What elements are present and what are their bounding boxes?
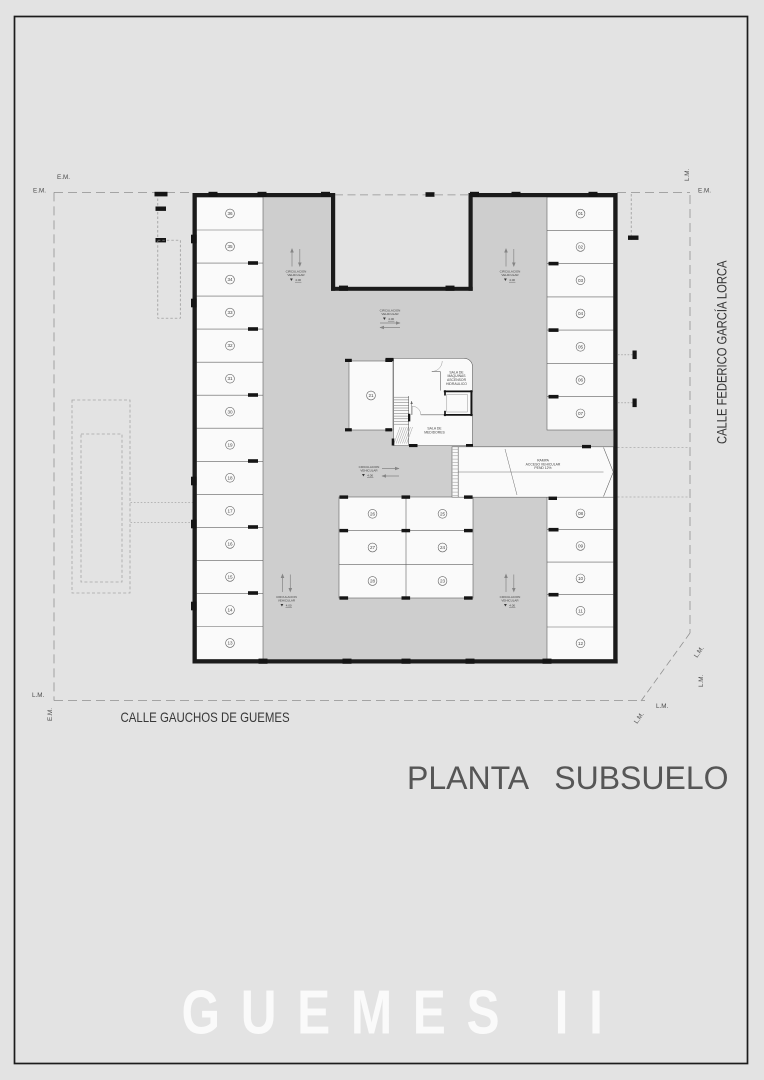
svg-text:15: 15 [227, 575, 233, 580]
svg-text:VEHICULAR: VEHICULAR [501, 599, 519, 603]
svg-text:35: 35 [227, 244, 233, 249]
svg-text:4.00: 4.00 [509, 604, 515, 608]
svg-text:33: 33 [227, 310, 233, 315]
svg-text:VEHICULAR: VEHICULAR [278, 599, 296, 603]
svg-text:L.M.: L.M. [698, 675, 705, 687]
svg-text:VEHICULAR: VEHICULAR [360, 469, 378, 473]
svg-text:L.M.: L.M. [656, 703, 668, 710]
svg-text:27: 27 [370, 545, 376, 550]
svg-text:07: 07 [578, 411, 584, 416]
svg-text:HIDRAULICO: HIDRAULICO [446, 382, 467, 386]
svg-text:CALLE GAUCHOS DE GUEMES: CALLE GAUCHOS DE GUEMES [121, 710, 290, 725]
svg-text:36: 36 [227, 211, 233, 216]
svg-text:GUEMES II: GUEMES II [182, 977, 624, 1047]
svg-text:L.M.: L.M. [32, 692, 44, 699]
svg-text:10: 10 [578, 576, 584, 581]
svg-text:E.M.: E.M. [47, 708, 54, 721]
svg-text:MEDIDORES: MEDIDORES [424, 430, 445, 434]
svg-text:16: 16 [227, 541, 233, 546]
svg-text:12: 12 [578, 641, 584, 646]
svg-text:17: 17 [227, 508, 233, 513]
svg-text:4.00: 4.00 [286, 604, 292, 608]
svg-text:VEHICULAR: VEHICULAR [381, 312, 399, 316]
svg-text:14: 14 [227, 608, 233, 613]
svg-text:PEND 12%: PEND 12% [534, 466, 551, 470]
svg-text:4.00: 4.00 [388, 317, 394, 321]
svg-text:03: 03 [578, 278, 584, 283]
svg-text:09: 09 [578, 543, 584, 548]
svg-text:E.M.: E.M. [698, 188, 711, 195]
svg-text:21: 21 [368, 393, 374, 398]
svg-text:11: 11 [578, 608, 583, 613]
svg-text:13: 13 [227, 641, 233, 646]
svg-text:34: 34 [227, 277, 233, 282]
svg-text:E.M.: E.M. [57, 174, 70, 181]
svg-text:01: 01 [578, 211, 584, 216]
svg-text:02: 02 [578, 245, 584, 250]
svg-text:08: 08 [578, 511, 584, 516]
svg-text:4.00: 4.00 [509, 278, 515, 282]
svg-text:28: 28 [370, 579, 376, 584]
svg-text:VEHICULAR: VEHICULAR [501, 273, 519, 277]
svg-text:4.00: 4.00 [295, 278, 301, 282]
svg-text:L.M.: L.M. [684, 169, 691, 181]
svg-text:26: 26 [370, 511, 376, 516]
svg-text:30: 30 [227, 409, 233, 414]
svg-text:18: 18 [227, 475, 233, 480]
svg-text:04: 04 [578, 311, 584, 316]
svg-text:25: 25 [440, 511, 446, 516]
svg-text:PLANTA SUBSUELO: PLANTA SUBSUELO [407, 760, 729, 796]
svg-text:05: 05 [578, 344, 584, 349]
svg-text:32: 32 [227, 343, 233, 348]
svg-text:4.00: 4.00 [367, 474, 373, 478]
svg-text:E.M.: E.M. [33, 188, 46, 195]
svg-text:24: 24 [440, 545, 446, 550]
svg-text:23: 23 [440, 579, 446, 584]
svg-text:31: 31 [227, 376, 233, 381]
svg-text:CALLE FEDERICO GARCÍA LORCA: CALLE FEDERICO GARCÍA LORCA [713, 260, 729, 444]
svg-text:VEHICULAR: VEHICULAR [287, 273, 305, 277]
svg-text:06: 06 [578, 378, 584, 383]
svg-text:19: 19 [227, 442, 233, 447]
